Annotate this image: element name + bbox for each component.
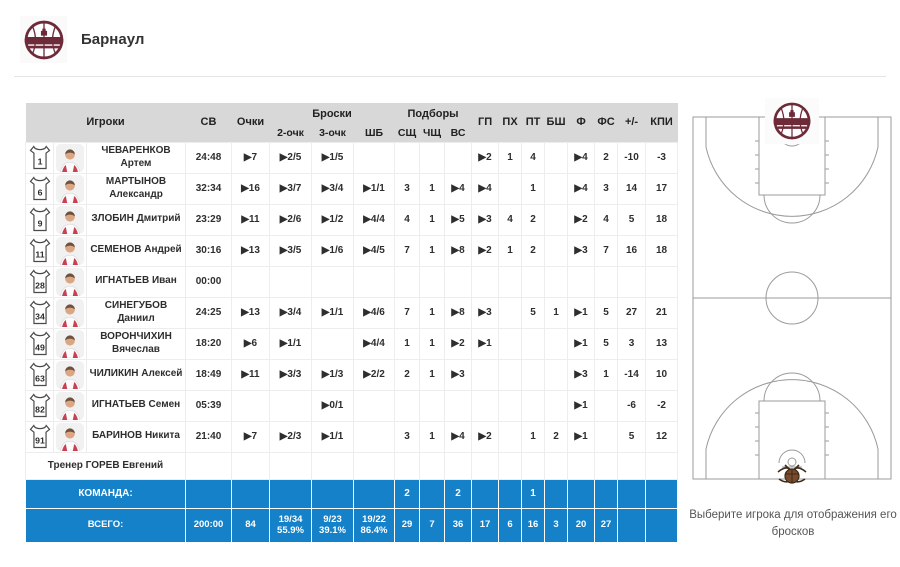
cell-pkh: [499, 328, 522, 359]
cell-sv: 23:29: [186, 204, 232, 235]
player-avatar-icon: [56, 330, 84, 358]
coach-empty-cell: [270, 452, 312, 479]
col-header-pt: ПТ: [522, 103, 545, 142]
cell-f[interactable]: ▶1: [568, 421, 595, 452]
cell-f[interactable]: ▶2: [568, 204, 595, 235]
cell-bsh: 2: [545, 421, 568, 452]
cell-bsh: [545, 235, 568, 266]
cell-kpi: 13: [646, 328, 678, 359]
cell-points[interactable]: ▶7: [232, 142, 270, 173]
jersey-number[interactable]: 9: [26, 204, 54, 235]
cell-vs[interactable]: ▶4: [445, 173, 472, 204]
cell-three[interactable]: ▶0/1: [312, 390, 354, 421]
jersey-number[interactable]: 82: [26, 390, 54, 421]
cell-gp[interactable]: ▶2: [472, 421, 499, 452]
svg-text:1: 1: [37, 156, 42, 166]
cell-pkh: [499, 173, 522, 204]
cell-pt: [522, 390, 545, 421]
svg-text:11: 11: [35, 249, 44, 259]
jersey-number[interactable]: 28: [26, 266, 54, 297]
cell-three: [312, 266, 354, 297]
cell-dsh: 1: [420, 235, 445, 266]
cell-gp[interactable]: ▶3: [472, 204, 499, 235]
cell-points: 84: [232, 508, 270, 542]
cell-kpi: 10: [646, 359, 678, 390]
cell-kpi: 21: [646, 297, 678, 328]
col-header-two: 2-очк: [270, 124, 312, 142]
page-header: Барнаул: [0, 0, 900, 76]
cell-three[interactable]: ▶1/2: [312, 204, 354, 235]
col-header-fs: ФС: [595, 103, 618, 142]
coach-empty-cell: [354, 452, 395, 479]
cell-sv: 18:20: [186, 328, 232, 359]
player-avatar[interactable]: [54, 359, 87, 390]
cell-bsh: [545, 479, 568, 508]
coach-empty-cell: [545, 452, 568, 479]
cell-sv: 200:00: [186, 508, 232, 542]
cell-points[interactable]: ▶6: [232, 328, 270, 359]
cell-bsh: 3: [545, 508, 568, 542]
svg-text:34: 34: [35, 311, 45, 321]
player-avatar-icon: [56, 144, 84, 172]
cell-two: [270, 479, 312, 508]
cell-pt: 4: [522, 142, 545, 173]
cell-three[interactable]: ▶1/1: [312, 421, 354, 452]
cell-pt: [522, 328, 545, 359]
cell-dsh: [420, 479, 445, 508]
cell-pt: 5: [522, 297, 545, 328]
cell-gp[interactable]: ▶2: [472, 235, 499, 266]
cell-pm: 27: [618, 297, 646, 328]
player-name[interactable]: БАРИНОВ Никита: [87, 421, 186, 452]
cell-two[interactable]: ▶3/7: [270, 173, 312, 204]
cell-points[interactable]: ▶13: [232, 235, 270, 266]
cell-kpi: -2: [646, 390, 678, 421]
cell-three[interactable]: ▶1/3: [312, 359, 354, 390]
cell-sv: 00:00: [186, 266, 232, 297]
player-row: 1ЧЕВАРЕНКОВ Артем24:48▶7▶2/5▶1/5▶214▶42-…: [26, 142, 678, 173]
coach-empty-cell: [420, 452, 445, 479]
jersey-icon: 49: [29, 331, 51, 356]
cell-kpi: [646, 266, 678, 297]
cell-vs[interactable]: ▶5: [445, 204, 472, 235]
player-name[interactable]: МАРТЫНОВ Александр: [87, 173, 186, 204]
court-team-logo-icon: [772, 101, 812, 141]
cell-three[interactable]: ▶1/6: [312, 235, 354, 266]
coach-empty-cell: [472, 452, 499, 479]
jersey-number[interactable]: 34: [26, 297, 54, 328]
cell-vs[interactable]: ▶4: [445, 421, 472, 452]
cell-kpi: 12: [646, 421, 678, 452]
cell-two[interactable]: ▶2/6: [270, 204, 312, 235]
cell-pm: 3: [618, 328, 646, 359]
cell-points: [232, 266, 270, 297]
cell-pm: 16: [618, 235, 646, 266]
cell-pkh: 1: [499, 235, 522, 266]
cell-sv: 24:48: [186, 142, 232, 173]
cell-two[interactable]: ▶2/5: [270, 142, 312, 173]
cell-ft[interactable]: ▶4/4: [354, 204, 395, 235]
player-row: 9ЗЛОБИН Дмитрий23:29▶11▶2/6▶1/2▶4/441▶5▶…: [26, 204, 678, 235]
player-row: 63ЧИЛИКИН Алексей18:49▶11▶3/3▶1/3▶2/221▶…: [26, 359, 678, 390]
cell-f[interactable]: ▶4: [568, 142, 595, 173]
cell-bsh: [545, 359, 568, 390]
cell-sv: 05:39: [186, 390, 232, 421]
coach-empty-cell: [595, 452, 618, 479]
cell-osh: 2: [395, 359, 420, 390]
cell-osh: [395, 266, 420, 297]
team-name: Барнаул: [81, 31, 144, 48]
coach-empty-cell: [522, 452, 545, 479]
svg-text:63: 63: [35, 373, 45, 383]
cell-two: [270, 390, 312, 421]
team-row-label: КОМАНДА:: [26, 479, 186, 508]
cell-points[interactable]: ▶16: [232, 173, 270, 204]
cell-gp[interactable]: ▶4: [472, 173, 499, 204]
cell-vs: [445, 390, 472, 421]
cell-points[interactable]: ▶11: [232, 359, 270, 390]
col-header-kpi: КПИ: [646, 103, 678, 142]
cell-ft: [354, 266, 395, 297]
svg-text:6: 6: [37, 187, 42, 197]
svg-text:82: 82: [35, 404, 45, 414]
cell-pkh: [499, 390, 522, 421]
court-team-logo: [765, 98, 819, 144]
content: Игроки СВ Очки Броски Подборы ГП ПХ ПТ Б…: [0, 77, 900, 543]
jersey-number[interactable]: 49: [26, 328, 54, 359]
cell-ft[interactable]: ▶4/4: [354, 328, 395, 359]
col-header-pkh: ПХ: [499, 103, 522, 142]
cell-ft: [354, 142, 395, 173]
cell-osh: 7: [395, 297, 420, 328]
cell-two[interactable]: ▶3/4: [270, 297, 312, 328]
player-avatar-icon: [56, 206, 84, 234]
cell-f[interactable]: ▶1: [568, 297, 595, 328]
cell-pkh: [499, 479, 522, 508]
player-name[interactable]: ВОРОНЧИХИН Вячеслав: [87, 328, 186, 359]
cell-pt: 1: [522, 173, 545, 204]
jersey-number[interactable]: 91: [26, 421, 54, 452]
cell-three: [312, 479, 354, 508]
player-row: 11СЕМЕНОВ Андрей30:16▶13▶3/5▶1/6▶4/571▶8…: [26, 235, 678, 266]
player-row: 6МАРТЫНОВ Александр32:34▶16▶3/7▶3/4▶1/13…: [26, 173, 678, 204]
cell-dsh: 1: [420, 421, 445, 452]
cell-bsh: [545, 173, 568, 204]
player-avatar[interactable]: [54, 390, 87, 421]
totals-row: ВСЕГО: 200:008419/34 55.9%9/23 39.1%19/2…: [26, 508, 678, 542]
coach-empty-cell: [445, 452, 472, 479]
cell-two: [270, 266, 312, 297]
cell-vs: 2: [445, 479, 472, 508]
player-name[interactable]: СИНЕГУБОВ Даниил: [87, 297, 186, 328]
cell-gp: [472, 266, 499, 297]
player-name[interactable]: ЧЕВАРЕНКОВ Артем: [87, 142, 186, 173]
cell-pt: 2: [522, 235, 545, 266]
player-avatar[interactable]: [54, 142, 87, 173]
cell-two[interactable]: ▶1/1: [270, 328, 312, 359]
cell-kpi: [646, 479, 678, 508]
col-header-three: 3-очк: [312, 124, 354, 142]
cell-f: 20: [568, 508, 595, 542]
cell-f: [568, 479, 595, 508]
player-avatar[interactable]: [54, 297, 87, 328]
cell-kpi: 18: [646, 204, 678, 235]
cell-pm: -6: [618, 390, 646, 421]
cell-ft[interactable]: ▶4/6: [354, 297, 395, 328]
cell-osh: 2: [395, 479, 420, 508]
coach-empty-cell: [499, 452, 522, 479]
player-avatar-icon: [56, 299, 84, 327]
jersey-icon: 28: [29, 269, 51, 294]
coach-empty-cell: [568, 452, 595, 479]
player-name[interactable]: ИГНАТЬЕВ Семен: [87, 390, 186, 421]
cell-three[interactable]: ▶1/1: [312, 297, 354, 328]
cell-dsh: [420, 390, 445, 421]
cell-gp: [472, 479, 499, 508]
cell-bsh: [545, 328, 568, 359]
cell-ft[interactable]: ▶2/2: [354, 359, 395, 390]
player-avatar-icon: [56, 175, 84, 203]
court-panel: Выберите игрока для отображения его брос…: [686, 103, 900, 543]
cell-bsh: [545, 142, 568, 173]
cell-f: [568, 266, 595, 297]
player-avatar[interactable]: [54, 235, 87, 266]
cell-gp: [472, 359, 499, 390]
col-header-osh: СЩ: [395, 124, 420, 142]
cell-two: 19/34 55.9%: [270, 508, 312, 542]
player-avatar[interactable]: [54, 204, 87, 235]
cell-pkh: [499, 421, 522, 452]
cell-osh: 29: [395, 508, 420, 542]
cell-three[interactable]: ▶3/4: [312, 173, 354, 204]
player-name[interactable]: СЕМЕНОВ Андрей: [87, 235, 186, 266]
court-opponent-logo: [774, 461, 810, 488]
cell-pt: 1: [522, 479, 545, 508]
cell-f[interactable]: ▶4: [568, 173, 595, 204]
jersey-number[interactable]: 63: [26, 359, 54, 390]
cell-points[interactable]: ▶7: [232, 421, 270, 452]
coach-empty-cell: [186, 452, 232, 479]
players-body: 1ЧЕВАРЕНКОВ Артем24:48▶7▶2/5▶1/5▶214▶42-…: [26, 142, 678, 452]
cell-ft[interactable]: ▶1/1: [354, 173, 395, 204]
jersey-icon: 6: [29, 176, 51, 201]
player-avatar[interactable]: [54, 328, 87, 359]
cell-fs: [595, 421, 618, 452]
cell-fs: 7: [595, 235, 618, 266]
col-header-f: Ф: [568, 103, 595, 142]
cell-vs[interactable]: ▶2: [445, 328, 472, 359]
cell-osh: 1: [395, 328, 420, 359]
cell-fs: 3: [595, 173, 618, 204]
col-header-shots: Броски: [270, 103, 395, 124]
cell-pkh: [499, 297, 522, 328]
player-row: 34СИНЕГУБОВ Даниил24:25▶13▶3/4▶1/1▶4/671…: [26, 297, 678, 328]
player-avatar-icon: [56, 268, 84, 296]
cell-dsh: 1: [420, 328, 445, 359]
col-header-plusminus: +/-: [618, 103, 646, 142]
cell-two[interactable]: ▶2/3: [270, 421, 312, 452]
jersey-icon: 91: [29, 424, 51, 449]
cell-pt: 1: [522, 421, 545, 452]
cell-points: [232, 479, 270, 508]
court-opponent-logo-icon: [774, 461, 810, 488]
cell-kpi: [646, 508, 678, 542]
cell-sv: 21:40: [186, 421, 232, 452]
team-logo: [20, 16, 67, 63]
cell-fs: [595, 390, 618, 421]
cell-bsh: [545, 204, 568, 235]
col-header-bsh: БШ: [545, 103, 568, 142]
col-header-ft: ШБ: [354, 124, 395, 142]
cell-dsh: [420, 142, 445, 173]
player-name[interactable]: ИГНАТЬЕВ Иван: [87, 266, 186, 297]
coach-empty-cell: [618, 452, 646, 479]
cell-three: 9/23 39.1%: [312, 508, 354, 542]
cell-dsh: 1: [420, 297, 445, 328]
jersey-icon: 11: [29, 238, 51, 263]
cell-dsh: 7: [420, 508, 445, 542]
jersey-icon: 82: [29, 393, 51, 418]
cell-gp: [472, 390, 499, 421]
cell-vs[interactable]: ▶8: [445, 235, 472, 266]
cell-pm: 5: [618, 421, 646, 452]
cell-fs: 5: [595, 328, 618, 359]
cell-f[interactable]: ▶1: [568, 328, 595, 359]
cell-ft: [354, 421, 395, 452]
cell-points[interactable]: ▶13: [232, 297, 270, 328]
col-header-sv: СВ: [186, 103, 232, 142]
player-avatar-icon: [56, 423, 84, 451]
cell-bsh: [545, 390, 568, 421]
cell-osh: 3: [395, 421, 420, 452]
col-header-points: Очки: [232, 103, 270, 142]
jersey-icon: 34: [29, 300, 51, 325]
player-avatar[interactable]: [54, 266, 87, 297]
cell-two[interactable]: ▶3/5: [270, 235, 312, 266]
svg-text:28: 28: [35, 280, 45, 290]
jersey-number[interactable]: 11: [26, 235, 54, 266]
coach-label: Тренер ГОРЕВ Евгений: [26, 452, 186, 479]
cell-dsh: 1: [420, 204, 445, 235]
cell-pkh: 1: [499, 142, 522, 173]
svg-text:49: 49: [35, 342, 45, 352]
coach-row: Тренер ГОРЕВ Евгений: [26, 452, 678, 479]
cell-pt: [522, 359, 545, 390]
cell-pkh: [499, 359, 522, 390]
player-name[interactable]: ЧИЛИКИН Алексей: [87, 359, 186, 390]
jersey-icon: 63: [29, 362, 51, 387]
cell-pt: 16: [522, 508, 545, 542]
cell-fs: [595, 479, 618, 508]
cell-osh: [395, 390, 420, 421]
col-header-vs: ВС: [445, 124, 472, 142]
cell-pm: [618, 508, 646, 542]
cell-two[interactable]: ▶3/3: [270, 359, 312, 390]
cell-f[interactable]: ▶3: [568, 359, 595, 390]
cell-ft[interactable]: ▶4/5: [354, 235, 395, 266]
cell-fs: 27: [595, 508, 618, 542]
cell-gp[interactable]: ▶3: [472, 297, 499, 328]
cell-osh: [395, 142, 420, 173]
cell-osh: 7: [395, 235, 420, 266]
cell-gp[interactable]: ▶2: [472, 142, 499, 173]
player-row: 82ИГНАТЬЕВ Семен05:39▶0/1▶1-6-2: [26, 390, 678, 421]
player-avatar-icon: [56, 392, 84, 420]
player-name[interactable]: ЗЛОБИН Дмитрий: [87, 204, 186, 235]
svg-text:9: 9: [37, 218, 42, 228]
cell-pm: -10: [618, 142, 646, 173]
cell-pt: 2: [522, 204, 545, 235]
cell-f[interactable]: ▶1: [568, 390, 595, 421]
cell-vs[interactable]: ▶3: [445, 359, 472, 390]
cell-osh: 3: [395, 173, 420, 204]
cell-sv: [186, 479, 232, 508]
jersey-icon: 9: [29, 207, 51, 232]
cell-gp[interactable]: ▶1: [472, 328, 499, 359]
cell-ft: [354, 390, 395, 421]
jersey-icon: 1: [29, 145, 51, 170]
cell-vs: 36: [445, 508, 472, 542]
cell-bsh: 1: [545, 297, 568, 328]
player-avatar-icon: [56, 361, 84, 389]
team-logo-icon: [23, 19, 65, 61]
cell-fs: 5: [595, 297, 618, 328]
col-header-gp: ГП: [472, 103, 499, 142]
cell-sv: 24:25: [186, 297, 232, 328]
cell-ft: [354, 479, 395, 508]
cell-fs: [595, 266, 618, 297]
cell-points[interactable]: ▶11: [232, 204, 270, 235]
cell-sv: 30:16: [186, 235, 232, 266]
cell-pkh: 6: [499, 508, 522, 542]
coach-empty-cell: [312, 452, 354, 479]
cell-pm: 14: [618, 173, 646, 204]
cell-three: [312, 328, 354, 359]
cell-points: [232, 390, 270, 421]
col-header-rebounds: Подборы: [395, 103, 472, 124]
cell-dsh: 1: [420, 173, 445, 204]
cell-gp: 17: [472, 508, 499, 542]
cell-pkh: 4: [499, 204, 522, 235]
cell-vs: [445, 142, 472, 173]
cell-kpi: 17: [646, 173, 678, 204]
player-avatar[interactable]: [54, 173, 87, 204]
jersey-number[interactable]: 6: [26, 173, 54, 204]
player-avatar[interactable]: [54, 421, 87, 452]
player-row: 28ИГНАТЬЕВ Иван00:00: [26, 266, 678, 297]
cell-vs: [445, 266, 472, 297]
jersey-number[interactable]: 1: [26, 142, 54, 173]
coach-empty-cell: [395, 452, 420, 479]
player-row: 91БАРИНОВ Никита21:40▶7▶2/3▶1/131▶4▶212▶…: [26, 421, 678, 452]
cell-f[interactable]: ▶3: [568, 235, 595, 266]
cell-sv: 32:34: [186, 173, 232, 204]
cell-vs[interactable]: ▶8: [445, 297, 472, 328]
cell-pt: [522, 266, 545, 297]
cell-pm: 5: [618, 204, 646, 235]
col-header-dsh: ЧЩ: [420, 124, 445, 142]
player-avatar-icon: [56, 237, 84, 265]
cell-ft: 19/22 86.4%: [354, 508, 395, 542]
col-header-players: Игроки: [26, 103, 186, 142]
team-summary-row: КОМАНДА: 221: [26, 479, 678, 508]
cell-bsh: [545, 266, 568, 297]
cell-three[interactable]: ▶1/5: [312, 142, 354, 173]
cell-fs: 4: [595, 204, 618, 235]
cell-dsh: 1: [420, 359, 445, 390]
cell-fs: 1: [595, 359, 618, 390]
stats-table: Игроки СВ Очки Броски Подборы ГП ПХ ПТ Б…: [25, 103, 678, 543]
